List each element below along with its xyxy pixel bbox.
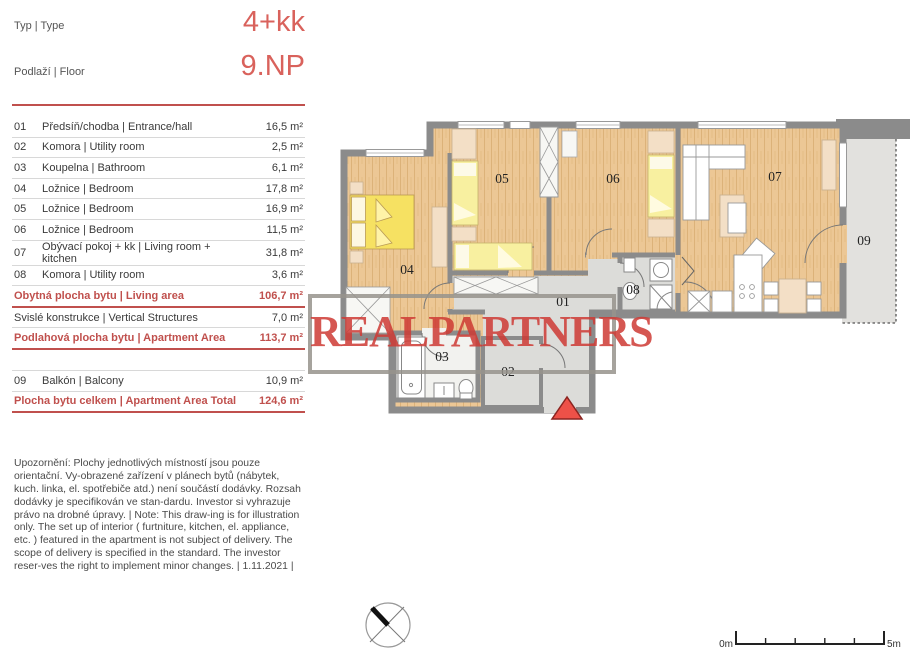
room-name: Balkón | Balcony: [40, 370, 243, 391]
room-num: 01: [12, 117, 40, 137]
compass-icon: [358, 596, 420, 658]
summary-area: 106,7 m²: [243, 286, 305, 307]
balcony-row: 09Balkón | Balcony10,9 m²: [12, 370, 305, 391]
room-area: 11,5 m²: [243, 219, 305, 240]
plan-label-06: 06: [606, 171, 620, 186]
summary-label: Podlahová plocha bytu | Apartment Area: [12, 328, 243, 349]
summary-label: Svislé konstrukce | Vertical Structures: [12, 307, 243, 328]
type-row: Typ | Type 4+kk: [12, 6, 305, 50]
room-num: 07: [12, 240, 40, 265]
summary-row-vertical-structures: Svislé konstrukce | Vertical Structures7…: [12, 307, 305, 328]
room-num: 03: [12, 158, 40, 179]
room-num: 04: [12, 178, 40, 199]
room-name: Ložnice | Bedroom: [40, 178, 243, 199]
room-name: Obývací pokoj + kk | Living room + kitch…: [40, 240, 243, 265]
scale-start-label: 0m: [719, 639, 733, 650]
floor-plan-drawing: 01 02 03 04 05 06 07 08 09: [330, 95, 910, 425]
balcony-09: [842, 139, 896, 323]
room-area: 6,1 m²: [243, 158, 305, 179]
total-area: 124,6 m²: [243, 391, 305, 412]
summary-row-apartment-area: Podlahová plocha bytu | Apartment Area11…: [12, 328, 305, 349]
total-label: Plocha bytu celkem | Apartment Area Tota…: [12, 391, 243, 412]
room-name: Komora | Utility room: [40, 265, 243, 286]
scale-bar: 0m 5m: [700, 626, 910, 656]
room-area: 17,8 m²: [243, 178, 305, 199]
room-area: 3,6 m²: [243, 265, 305, 286]
info-panel: Typ | Type 4+kk Podlaží | Floor 9.NP 01P…: [12, 6, 305, 413]
room-num: 08: [12, 265, 40, 286]
room-name: Komora | Utility room: [40, 137, 243, 158]
table-row: 01Předsíň/chodba | Entrance/hall16,5 m²: [12, 117, 305, 137]
floor-label: Podlaží | Floor: [14, 66, 85, 78]
room-name: Ložnice | Bedroom: [40, 219, 243, 240]
room-name: Předsíň/chodba | Entrance/hall: [40, 117, 243, 137]
disclaimer-text: Upozornění: Plochy jednotlivých místnost…: [14, 458, 306, 574]
table-row: 05Ložnice | Bedroom16,9 m²: [12, 199, 305, 220]
room-num: 02: [12, 137, 40, 158]
room-num: 05: [12, 199, 40, 220]
room-area-table: 01Předsíň/chodba | Entrance/hall16,5 m² …: [12, 117, 305, 413]
table-row: 02Komora | Utility room2,5 m²: [12, 137, 305, 158]
floor-value: 9.NP: [241, 50, 305, 83]
type-label: Typ | Type: [14, 20, 64, 32]
room-area: 16,5 m²: [243, 117, 305, 137]
summary-row-living-area: Obytná plocha bytu | Living area106,7 m²: [12, 286, 305, 307]
wardrobe-05-06: [540, 127, 558, 197]
floorplan-sheet: Typ | Type 4+kk Podlaží | Floor 9.NP 01P…: [0, 0, 910, 664]
plan-label-08: 08: [626, 282, 640, 297]
floor-row: Podlaží | Floor 9.NP: [12, 50, 305, 94]
hall-wardrobe: [454, 277, 538, 294]
room-name: Koupelna | Bathroom: [40, 158, 243, 179]
room-name: Ložnice | Bedroom: [40, 199, 243, 220]
balcony-top-wall: [836, 119, 910, 139]
room-num: 06: [12, 219, 40, 240]
table-spacer: [12, 349, 305, 371]
table-row: 07Obývací pokoj + kk | Living room + kit…: [12, 240, 305, 265]
total-row: Plocha bytu celkem | Apartment Area Tota…: [12, 391, 305, 412]
table-row: 04Ložnice | Bedroom17,8 m²: [12, 178, 305, 199]
room-area: 31,8 m²: [243, 240, 305, 265]
plan-label-05: 05: [495, 171, 509, 186]
watermark-logo: REALPARTNERS: [310, 306, 630, 357]
plan-label-09: 09: [857, 233, 871, 248]
table-row: 08Komora | Utility room3,6 m²: [12, 265, 305, 286]
table-row: 03Koupelna | Bathroom6,1 m²: [12, 158, 305, 179]
room-num: 09: [12, 370, 40, 391]
scale-end-label: 5m: [887, 639, 901, 650]
summary-area: 113,7 m²: [243, 328, 305, 349]
plan-label-04: 04: [400, 262, 414, 277]
room-area: 2,5 m²: [243, 137, 305, 158]
summary-area: 7,0 m²: [243, 307, 305, 328]
room-area: 10,9 m²: [243, 370, 305, 391]
header-divider: [12, 104, 305, 106]
plan-label-07: 07: [768, 169, 782, 184]
room-area: 16,9 m²: [243, 199, 305, 220]
summary-label: Obytná plocha bytu | Living area: [12, 286, 243, 307]
table-row: 06Ložnice | Bedroom11,5 m²: [12, 219, 305, 240]
type-value: 4+kk: [243, 6, 305, 39]
